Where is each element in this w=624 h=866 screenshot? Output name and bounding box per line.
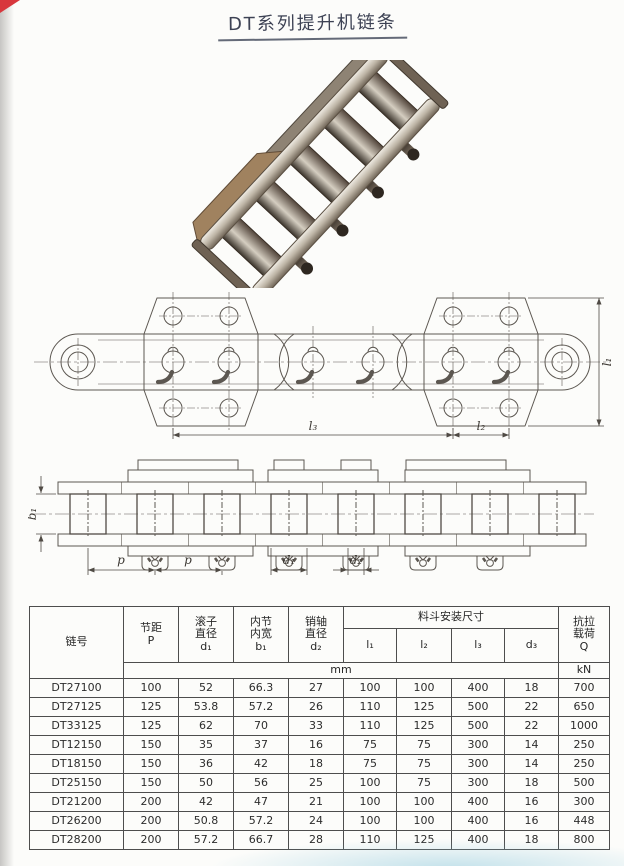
title-wrap: DT系列提升机链条 [0, 9, 624, 40]
spec-value-cell: 300 [452, 774, 505, 793]
spec-value-cell: 57.2 [234, 698, 289, 717]
spec-value-cell: 26 [289, 698, 344, 717]
spec-value-cell: 300 [452, 755, 505, 774]
spec-value-cell: 650 [559, 698, 610, 717]
chain-model-cell: DT27100 [30, 679, 124, 698]
spec-value-cell: 22 [505, 717, 559, 736]
spec-value-cell: 62 [179, 717, 234, 736]
spec-value-cell: 500 [452, 717, 505, 736]
spec-value-cell: 250 [559, 736, 610, 755]
spec-value-cell: 21 [289, 793, 344, 812]
chain-model-cell: DT18150 [30, 755, 124, 774]
units-mm-cell: mm [124, 663, 559, 679]
chain-model-cell: DT25150 [30, 774, 124, 793]
spec-value-cell: 110 [344, 717, 397, 736]
spec-value-cell: 14 [505, 755, 559, 774]
spec-value-cell: 42 [234, 755, 289, 774]
dim-label-p-right: p [184, 553, 192, 567]
dim-label-l2: l₂ [477, 419, 486, 433]
dim-label-b1: b₁ [28, 508, 39, 521]
table-row: DT271001005266.32710010040018700 [30, 679, 610, 698]
spec-value-cell: 18 [289, 755, 344, 774]
spec-value-cell: 400 [452, 679, 505, 698]
catalog-page: DT系列提升机链条 [0, 0, 624, 866]
dim-label-l1: l₁ [600, 358, 614, 367]
col-header-chain-no: 链号 [30, 607, 124, 679]
chain-model-cell: DT21200 [30, 793, 124, 812]
col-header-d3: d₃ [505, 629, 559, 663]
spec-value-cell: 42 [179, 793, 234, 812]
spec-value-cell: 125 [124, 717, 179, 736]
spec-value-cell: 16 [505, 793, 559, 812]
spec-value-cell: 400 [452, 793, 505, 812]
col-header-inner-width: 内节 内宽 b₁ [234, 607, 289, 663]
spec-value-cell: 53.8 [179, 698, 234, 717]
col-header-pin-dia: 销轴 直径 d₂ [289, 607, 344, 663]
spec-value-cell: 36 [179, 755, 234, 774]
spec-value-cell: 1000 [559, 717, 610, 736]
col-header-pitch: 节距 P [124, 607, 179, 663]
spec-value-cell: 33 [289, 717, 344, 736]
col-header-tensile: 抗拉 载荷 Q [559, 607, 610, 663]
page-title: DT系列提升机链条 [217, 8, 406, 42]
spec-value-cell: 75 [344, 736, 397, 755]
spec-value-cell: 500 [559, 774, 610, 793]
spec-value-cell: 100 [344, 679, 397, 698]
spec-value-cell: 110 [344, 698, 397, 717]
spec-value-cell: 75 [397, 774, 452, 793]
spec-table: 链号 节距 P 滚子 直径 d₁ 内节 内宽 b₁ 销轴 直径 d₂ 料斗安装尺… [29, 606, 610, 850]
spec-value-cell: 47 [234, 793, 289, 812]
units-kn-cell: kN [559, 663, 610, 679]
spec-value-cell: 66.3 [234, 679, 289, 698]
dim-label-l3: l₃ [309, 419, 318, 433]
chain-model-cell: DT12150 [30, 736, 124, 755]
col-header-l2: l₂ [397, 629, 452, 663]
dim-label-p-left: p [117, 553, 125, 567]
table-row: DT18150150364218757530014250 [30, 755, 610, 774]
table-row: DT33125125627033110125500221000 [30, 717, 610, 736]
spec-value-cell: 70 [234, 717, 289, 736]
col-header-l3: l₃ [452, 629, 505, 663]
spec-value-cell: 125 [397, 698, 452, 717]
spec-value-cell: 150 [124, 736, 179, 755]
spec-value-cell: 125 [397, 717, 452, 736]
chain-photo-group [190, 60, 455, 288]
side-view-svg: b₁ p p d₁ d₂ [28, 452, 616, 592]
spec-value-cell: 100 [124, 679, 179, 698]
spec-value-cell: 200 [124, 793, 179, 812]
col-header-bucket-dims: 料斗安装尺寸 [344, 607, 559, 629]
table-row: DT12150150353716757530014250 [30, 736, 610, 755]
chain-side-view-drawing: b₁ p p d₁ d₂ [28, 452, 616, 596]
spec-value-cell: 100 [397, 793, 452, 812]
table-row: DT251501505056251007530018500 [30, 774, 610, 793]
spec-value-cell: 35 [179, 736, 234, 755]
chain-model-cell: DT27125 [30, 698, 124, 717]
top-view-linework [34, 292, 610, 432]
top-view-svg: l₃ l₂ l₁ [28, 290, 616, 442]
spec-value-cell: 56 [234, 774, 289, 793]
spec-value-cell: 22 [505, 698, 559, 717]
spec-value-cell: 18 [505, 679, 559, 698]
spec-value-cell: 125 [124, 698, 179, 717]
spec-value-cell: 75 [397, 736, 452, 755]
scan-bottom-tint [0, 824, 624, 866]
spec-value-cell: 16 [289, 736, 344, 755]
spec-value-cell: 14 [505, 736, 559, 755]
spec-value-cell: 100 [397, 679, 452, 698]
dim-label-d1: d₁ [283, 553, 296, 567]
spec-value-cell: 37 [234, 736, 289, 755]
spec-value-cell: 150 [124, 774, 179, 793]
spec-value-cell: 700 [559, 679, 610, 698]
table-row: DT2120020042472110010040016300 [30, 793, 610, 812]
spec-value-cell: 75 [344, 755, 397, 774]
table-row: DT2712512553.857.22611012550022650 [30, 698, 610, 717]
dim-label-d2: d₂ [350, 553, 363, 567]
spec-value-cell: 25 [289, 774, 344, 793]
spec-value-cell: 100 [344, 793, 397, 812]
spec-value-cell: 18 [505, 774, 559, 793]
spec-value-cell: 150 [124, 755, 179, 774]
chain-photo-svg [190, 60, 455, 288]
chain-photo [190, 60, 455, 288]
spec-value-cell: 500 [452, 698, 505, 717]
spec-value-cell: 75 [397, 755, 452, 774]
spec-value-cell: 250 [559, 755, 610, 774]
col-header-roller-dia: 滚子 直径 d₁ [179, 607, 234, 663]
chain-top-view-drawing: l₃ l₂ l₁ [28, 290, 616, 446]
top-view-dimensions: l₃ l₂ l₁ [173, 298, 614, 439]
spec-value-cell: 100 [344, 774, 397, 793]
chain-model-cell: DT33125 [30, 717, 124, 736]
spec-value-cell: 50 [179, 774, 234, 793]
spec-value-cell: 300 [452, 736, 505, 755]
spec-value-cell: 52 [179, 679, 234, 698]
spec-value-cell: 300 [559, 793, 610, 812]
page-edge-shadow [0, 0, 14, 866]
spec-value-cell: 27 [289, 679, 344, 698]
col-header-l1: l₁ [344, 629, 397, 663]
